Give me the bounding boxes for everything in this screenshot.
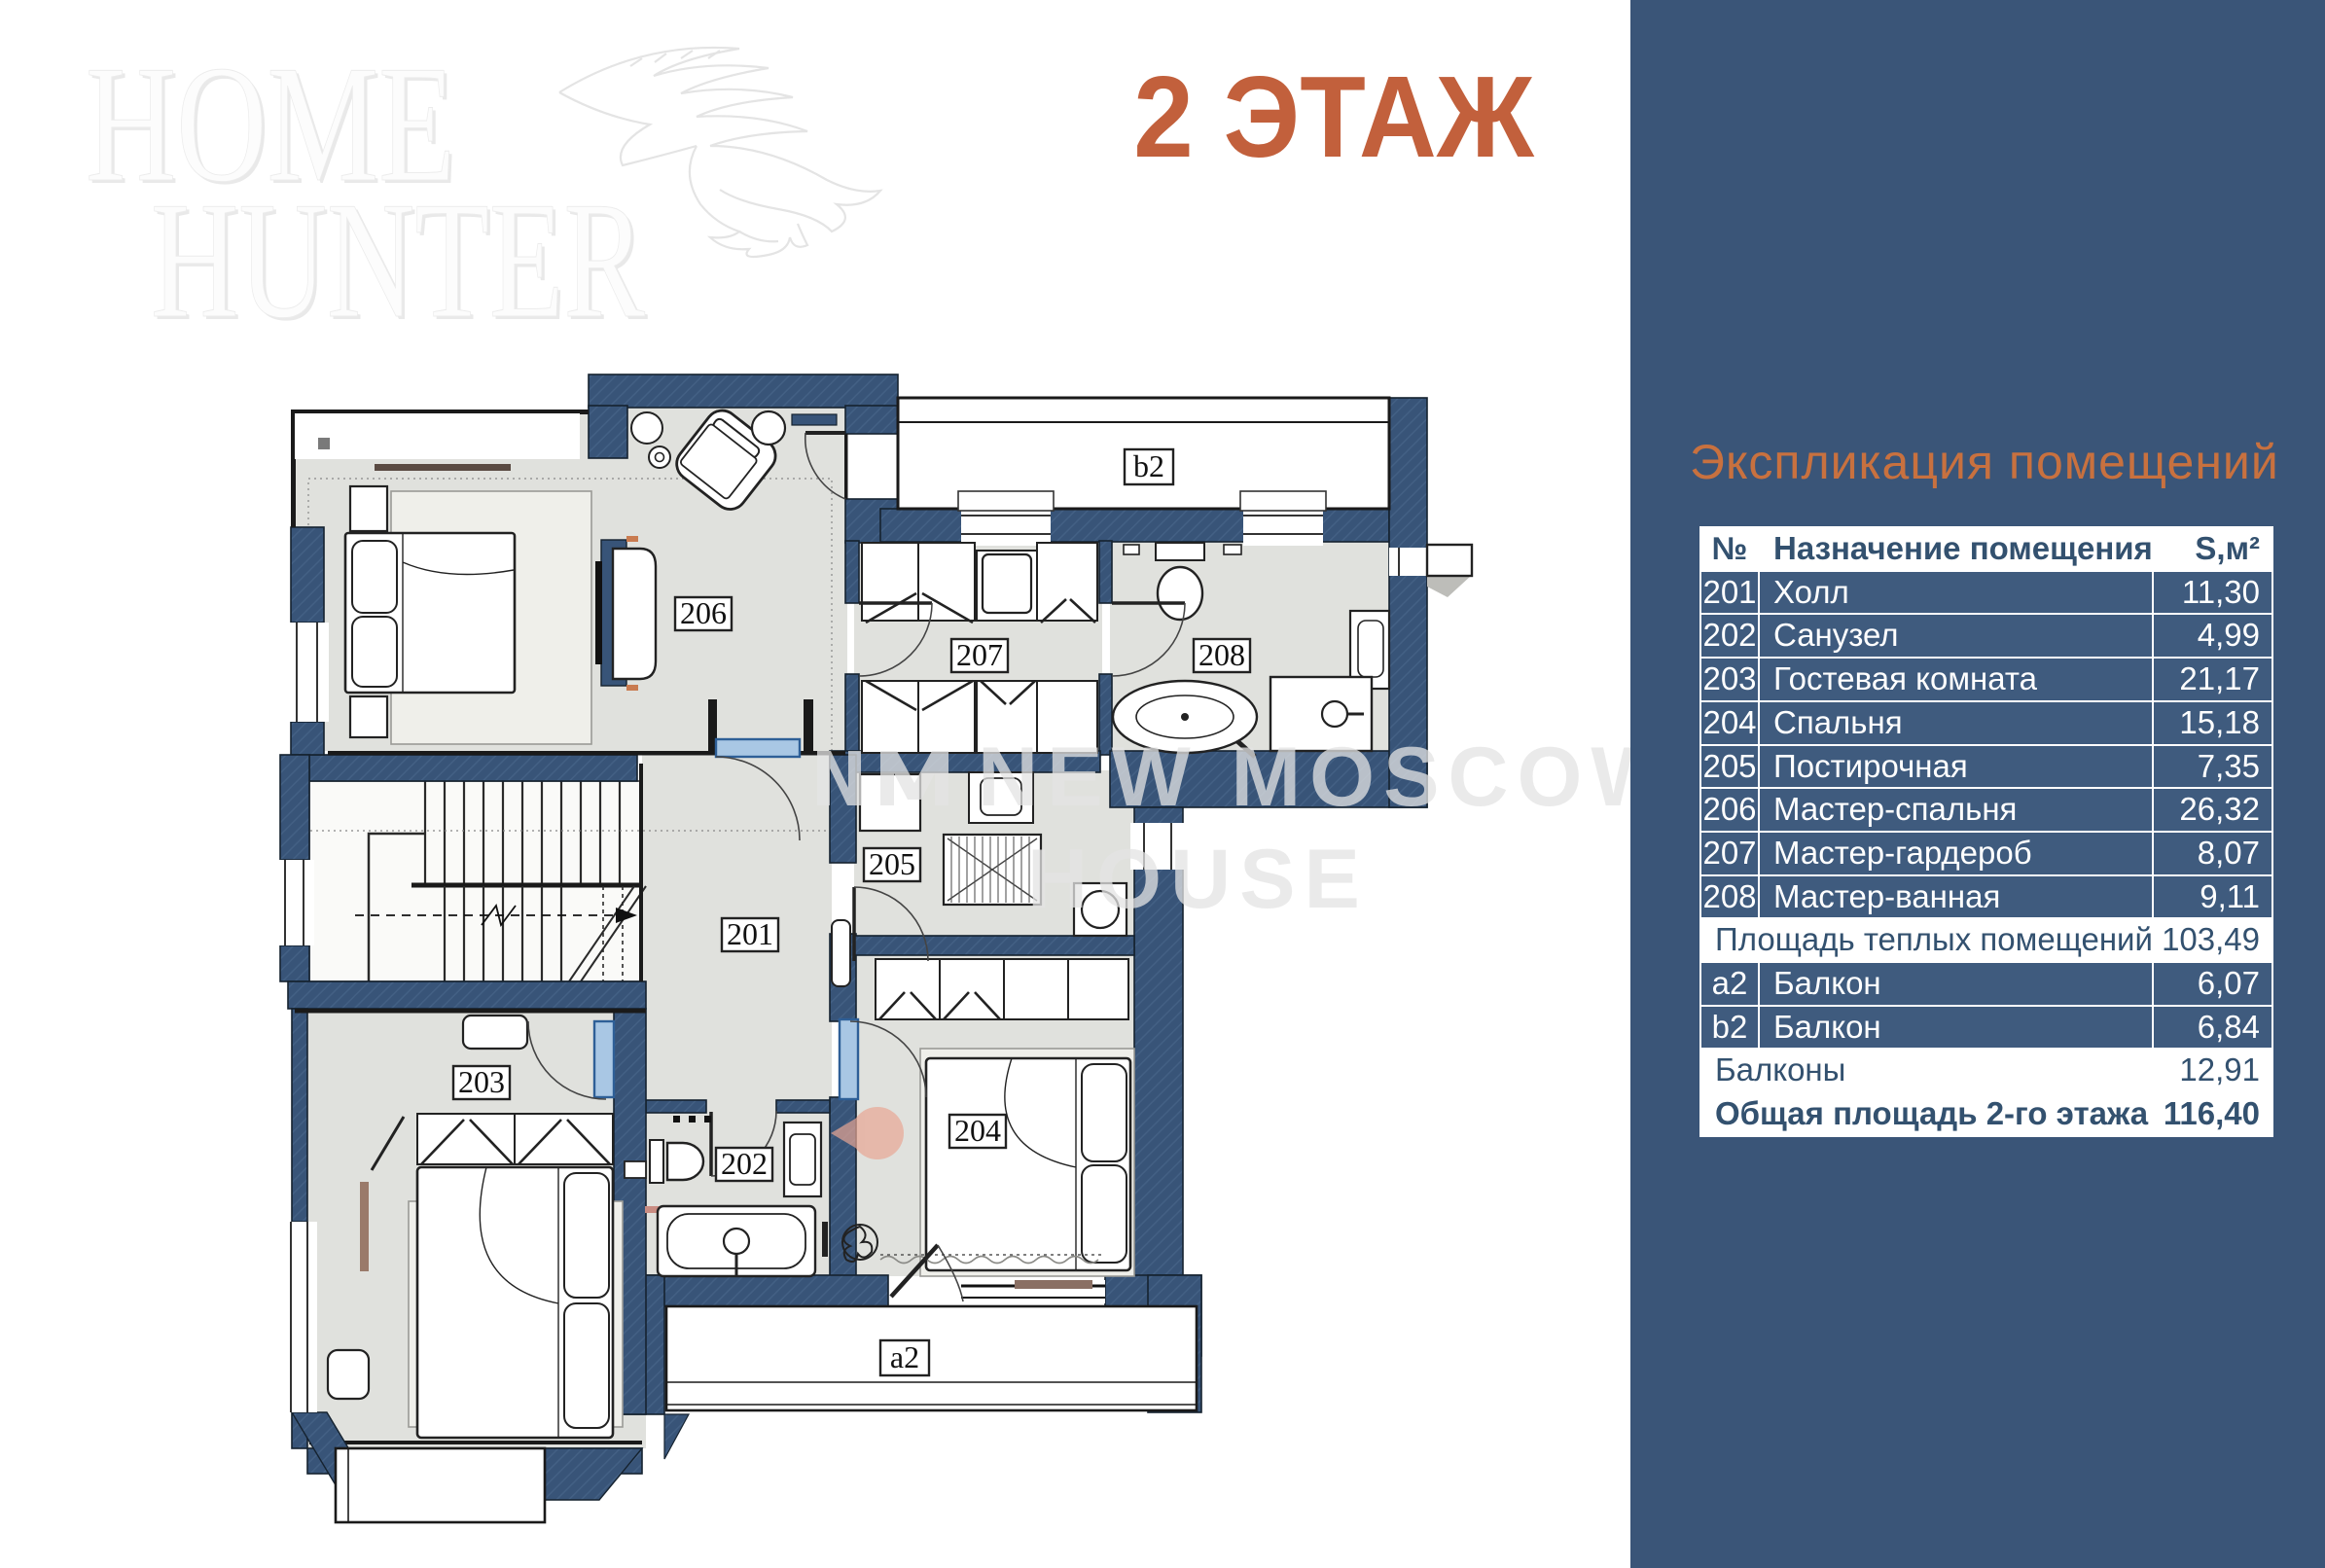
svg-text:HOUSE: HOUSE xyxy=(1027,833,1369,926)
svg-text:207: 207 xyxy=(956,637,1003,672)
svg-text:NEW MOSCOW: NEW MOSCOW xyxy=(978,731,1679,824)
svg-text:204: 204 xyxy=(954,1113,1001,1148)
svg-text:HUNTER: HUNTER xyxy=(151,168,645,353)
svg-text:208: 208 xyxy=(1198,637,1245,672)
svg-text:205: 205 xyxy=(869,846,915,881)
svg-text:202: 202 xyxy=(721,1146,768,1181)
svg-text:201: 201 xyxy=(727,916,773,951)
svg-text:b2: b2 xyxy=(1133,448,1164,483)
svg-text:a2: a2 xyxy=(890,1339,919,1374)
svg-text:203: 203 xyxy=(458,1064,505,1099)
svg-text:206: 206 xyxy=(680,595,727,630)
